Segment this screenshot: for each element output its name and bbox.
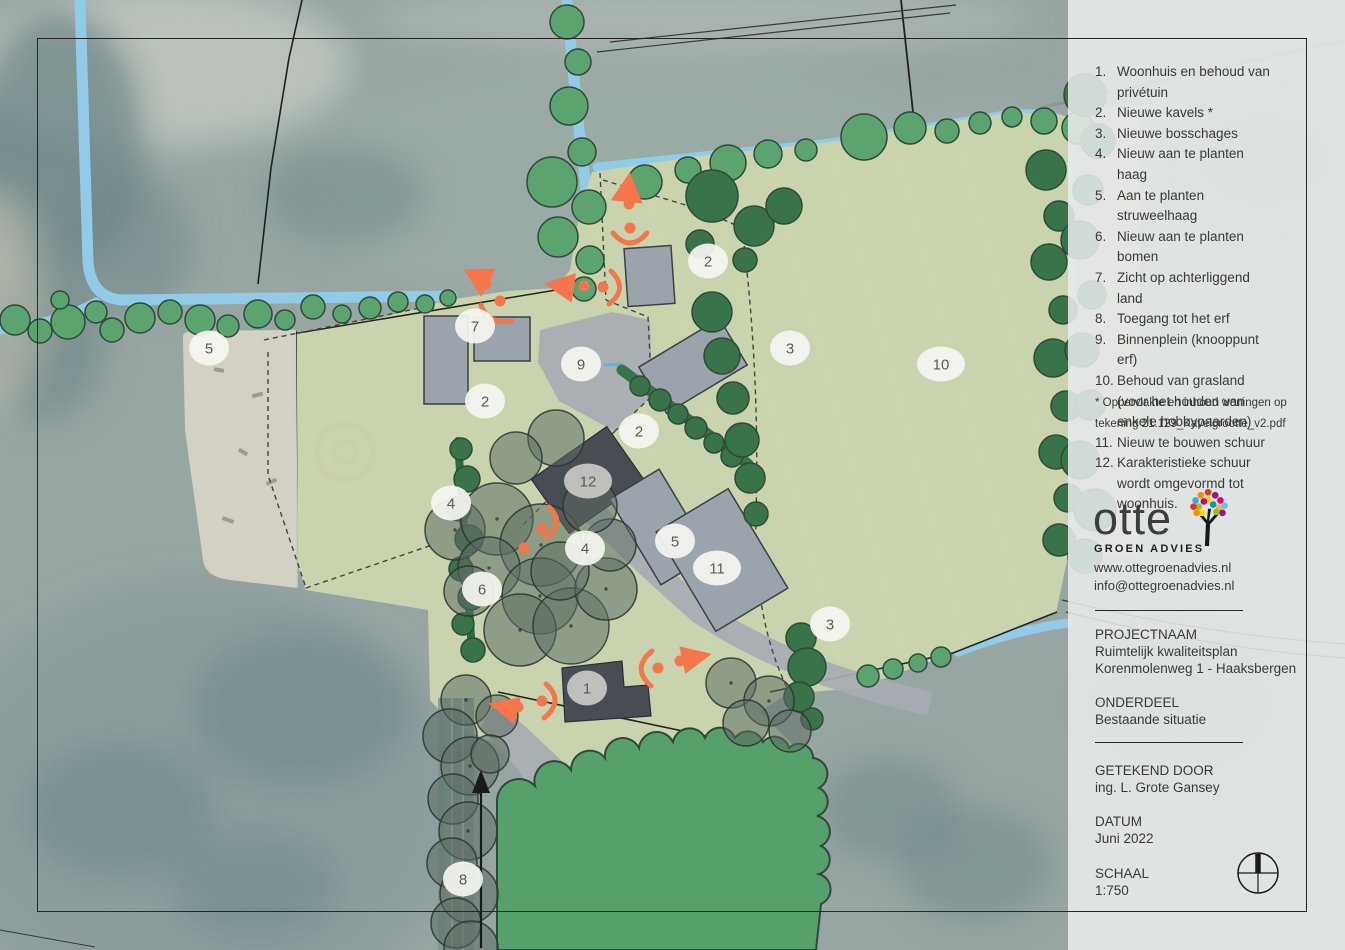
date-value: Juni 2022	[1095, 830, 1154, 847]
drawn-by-value: ing. L. Grote Gansey	[1095, 779, 1220, 796]
building-north	[624, 245, 675, 306]
svg-text:9: 9	[577, 357, 585, 374]
contact-block: www.ottegroenadvies.nl info@ottegroenadv…	[1094, 559, 1234, 594]
scale-value: 1:750	[1095, 882, 1149, 899]
map-marker: 5	[655, 524, 695, 559]
project-part-block: ONDERDEEL Bestaande situatie	[1095, 694, 1206, 728]
svg-text:7: 7	[471, 319, 479, 336]
site-plan-sheet: 57922231044125116318 1.Woonhuis en behou…	[0, 0, 1345, 950]
map-marker: 12	[564, 464, 612, 499]
legend-item: 8.Toegang tot het erf	[1095, 309, 1315, 330]
divider	[1095, 610, 1243, 611]
map-marker: 6	[462, 572, 502, 607]
map-marker: 2	[465, 384, 505, 419]
svg-text:1: 1	[583, 681, 591, 698]
legend-item: 3.Nieuwe bosschages	[1095, 124, 1315, 145]
legend-item: 2.Nieuwe kavels *	[1095, 103, 1315, 124]
map-marker: 3	[770, 331, 810, 366]
project-name-label: PROJECTNAAM	[1095, 626, 1296, 643]
logo-wordmark: otte	[1093, 497, 1172, 541]
legend-item: 9.Binnenplein (knooppunt erf)	[1095, 330, 1315, 371]
logo-tree-icon	[1185, 488, 1231, 551]
legend-item: 7.Zicht op achterliggend land	[1095, 268, 1315, 309]
svg-text:10: 10	[933, 357, 950, 374]
legend-footnote: * Oppervlakte en inhoud woningen opteken…	[1095, 393, 1320, 435]
map-marker: 4	[431, 486, 471, 521]
drawn-by-block: GETEKEND DOOR ing. L. Grote Gansey	[1095, 762, 1220, 796]
part-label: ONDERDEEL	[1095, 694, 1206, 711]
north-arrow-icon	[1234, 849, 1282, 902]
svg-text:5: 5	[205, 341, 213, 358]
legend-item: 1.Woonhuis en behoud van privétuin	[1095, 62, 1315, 103]
map-marker: 2	[619, 414, 659, 449]
svg-text:4: 4	[581, 541, 589, 558]
website-link[interactable]: www.ottegroenadvies.nl	[1094, 559, 1234, 577]
svg-text:6: 6	[478, 582, 486, 599]
svg-text:3: 3	[826, 617, 834, 634]
date-label: DATUM	[1095, 813, 1154, 830]
svg-text:8: 8	[459, 872, 467, 889]
map-marker: 2	[688, 244, 728, 279]
legend-item: 6.Nieuw aan te planten bomen	[1095, 227, 1315, 268]
project-name-line2: Korenmolenweg 1 - Haaksbergen	[1095, 660, 1296, 677]
svg-text:12: 12	[580, 474, 597, 491]
legend-panel: 1.Woonhuis en behoud van privétuin2.Nieu…	[1068, 0, 1345, 950]
svg-text:2: 2	[704, 254, 712, 271]
svg-text:3: 3	[786, 341, 794, 358]
scale-label: SCHAAL	[1095, 865, 1149, 882]
drawn-by-label: GETEKEND DOOR	[1095, 762, 1220, 779]
project-name-block: PROJECTNAAM Ruimtelijk kwaliteitsplan Ko…	[1095, 626, 1296, 678]
map-marker: 5	[189, 331, 229, 366]
svg-text:4: 4	[447, 496, 455, 513]
logo-subtitle: GROEN ADVIES	[1094, 543, 1204, 555]
legend-item: 5.Aan te planten struweelhaag	[1095, 186, 1315, 227]
map-marker: 10	[917, 347, 965, 382]
map-marker: 7	[455, 309, 495, 344]
svg-text:2: 2	[481, 394, 489, 411]
legend-list: 1.Woonhuis en behoud van privétuin2.Nieu…	[1095, 62, 1315, 515]
map-marker: 11	[693, 551, 741, 586]
svg-text:2: 2	[635, 424, 643, 441]
map-marker: 3	[810, 607, 850, 642]
map-marker: 8	[443, 862, 483, 897]
email-link[interactable]: info@ottegroenadvies.nl	[1094, 577, 1234, 595]
date-block: DATUM Juni 2022	[1095, 813, 1154, 847]
svg-text:5: 5	[671, 534, 679, 551]
divider	[1095, 742, 1243, 743]
legend-item: 4.Nieuw aan te planten haag	[1095, 144, 1315, 185]
svg-text:11: 11	[709, 561, 725, 578]
project-name-line1: Ruimtelijk kwaliteitsplan	[1095, 643, 1296, 660]
legend-item: 11.Nieuw te bouwen schuur	[1095, 433, 1315, 454]
part-value: Bestaande situatie	[1095, 711, 1206, 728]
map-marker: 4	[565, 531, 605, 566]
map-marker: 1	[567, 671, 607, 706]
map-marker: 9	[561, 347, 601, 382]
scale-block: SCHAAL 1:750	[1095, 865, 1149, 899]
